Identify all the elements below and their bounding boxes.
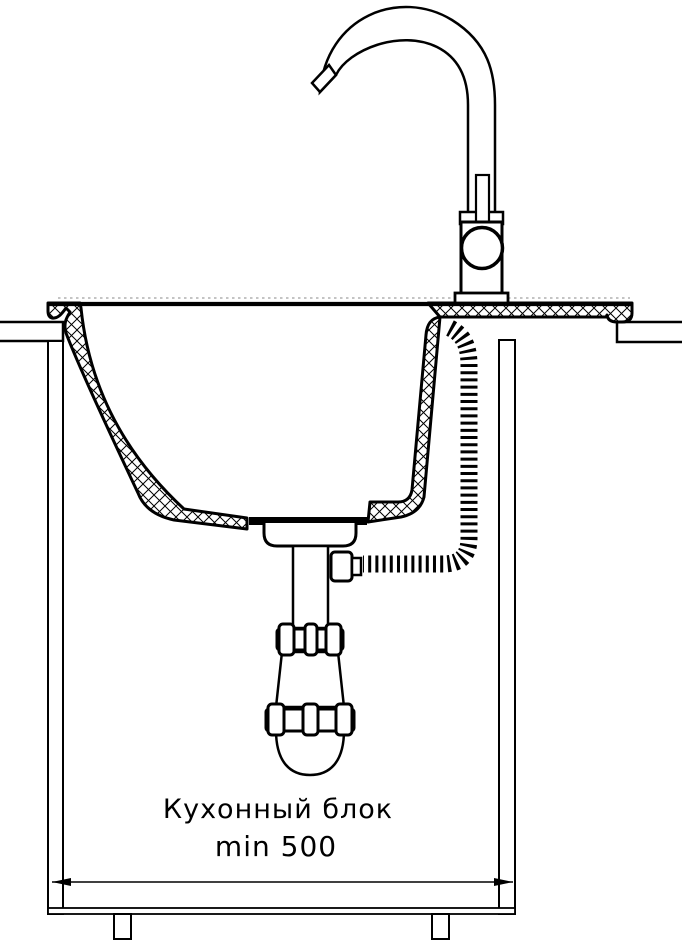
spout-tip [312, 65, 336, 92]
cabinet-label: Кухонный блок [163, 794, 393, 825]
width-dimension: Кухонный блок min 500 [52, 794, 513, 886]
spout-stem [476, 175, 489, 224]
countertop [0, 322, 682, 342]
cabinet-right-wall [499, 340, 515, 914]
cabinet-left-leg [114, 914, 131, 939]
drain-cup [264, 523, 356, 546]
hose-connection-nut [331, 552, 361, 581]
gooseneck-spout [320, 7, 495, 214]
siphon-trap [266, 624, 354, 775]
siphon-lower-coupling [266, 704, 354, 735]
siphon-taper-body [276, 652, 344, 707]
diagram-canvas: Кухонный блок min 500 [0, 0, 682, 940]
min-width-label: min 500 [215, 830, 337, 863]
faucet-base-flange [455, 293, 508, 303]
siphon-dome-bottom [276, 730, 344, 775]
countertop-left [0, 322, 63, 341]
sink-installation-diagram: Кухонный блок min 500 [0, 0, 682, 940]
faucet-valve-circle [462, 228, 503, 269]
faucet-mixer [312, 7, 508, 303]
countertop-right [617, 322, 682, 342]
cabinet-right-leg [432, 914, 449, 939]
sink-bowl [48, 303, 632, 529]
cabinet-left-wall [48, 341, 63, 914]
siphon-upper-coupling [277, 624, 343, 655]
sink-left-wall-section [48, 303, 247, 529]
drain-tailpipe [293, 546, 328, 628]
